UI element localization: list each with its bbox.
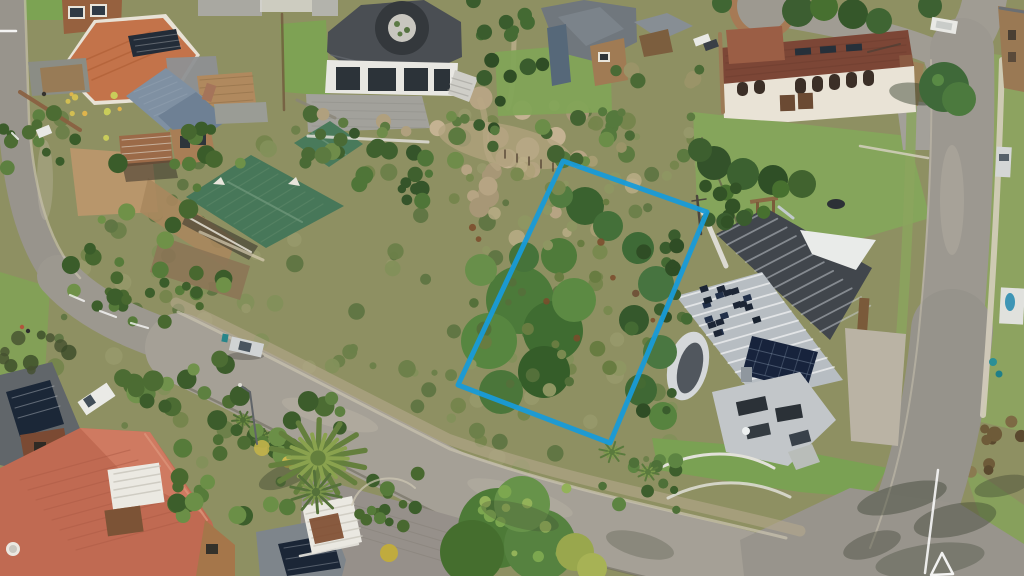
med-wing-window-1 xyxy=(737,82,748,96)
verge-bushes-east xyxy=(658,479,668,489)
verge-bushes-east xyxy=(629,458,640,469)
scrub-texture xyxy=(55,125,69,139)
garden-topleft xyxy=(182,157,196,171)
scrub-texture xyxy=(348,344,358,354)
mansion-slope-garden xyxy=(446,111,457,122)
shadow-bushes-above-solar-house xyxy=(27,366,36,375)
big-tree-highlights xyxy=(511,550,517,556)
mansion-courtyard-core xyxy=(388,14,416,42)
flowers-topleft xyxy=(70,111,75,116)
pool xyxy=(1005,293,1015,311)
shrubs-north-road xyxy=(145,288,155,298)
shrubs-south-road-1 xyxy=(143,370,164,391)
bushes-right-of-green-house xyxy=(366,142,382,158)
mansion-slope-garden xyxy=(315,147,332,164)
trees-mansion-east xyxy=(477,24,492,39)
bushes-right-of-green-house xyxy=(425,170,433,178)
plot-scrub xyxy=(604,184,614,194)
flowers-topleft xyxy=(104,109,110,115)
mansion-slope-garden xyxy=(315,129,326,140)
round-garden-bed xyxy=(409,501,422,514)
mansion-slope-garden xyxy=(338,118,348,128)
garden-topleft xyxy=(56,157,65,166)
scrub-texture xyxy=(431,370,437,376)
garden-topleft xyxy=(193,183,202,192)
med-solar-tube-3 xyxy=(846,43,862,51)
tan-building-window-1 xyxy=(1008,30,1016,40)
shrubs-south-road-2 xyxy=(207,410,227,430)
plot-bush-8 xyxy=(465,254,497,286)
road-bend-tree-highlight xyxy=(932,74,944,86)
sand-patches xyxy=(461,164,472,175)
scrub-ne xyxy=(616,142,627,153)
med-arch-5 xyxy=(863,70,874,86)
med-arch-2 xyxy=(812,76,823,92)
east-tree-fill xyxy=(636,403,651,418)
courtyard-plant-3 xyxy=(398,32,403,37)
plot-scrub xyxy=(590,341,606,357)
med-wing-window-2 xyxy=(754,80,765,94)
round-garden-bed xyxy=(411,467,425,481)
house-g-window xyxy=(600,54,608,60)
shrubs-north-road xyxy=(190,286,202,298)
plot-sand xyxy=(488,207,501,220)
shrubs-south-road-1 xyxy=(188,363,200,375)
garden-bed-left xyxy=(172,481,183,492)
plot-scrub xyxy=(551,340,559,348)
garden-topleft xyxy=(84,243,96,255)
garden-topleft xyxy=(159,278,169,288)
trees-mansion-east xyxy=(517,8,532,23)
scrub-texture xyxy=(547,445,564,462)
blue-house-flat-roof xyxy=(214,102,268,124)
scrub-texture xyxy=(196,456,208,468)
bushes-below-g-lawn xyxy=(490,125,500,135)
plot-dry-bushes xyxy=(597,238,604,245)
med-solar-tube-2 xyxy=(820,45,836,53)
med-arch-4 xyxy=(846,72,857,88)
plot-scrub xyxy=(557,350,566,359)
east-tree-6 xyxy=(649,402,677,430)
mansion-slope-garden xyxy=(377,127,388,138)
teal-object-sidewalk-1 xyxy=(989,358,997,366)
big-tree-highlights xyxy=(498,485,511,498)
verge-bushes-east xyxy=(668,453,683,468)
plot-dry-bushes xyxy=(610,275,616,281)
round-garden-bed xyxy=(380,481,395,496)
scrub-texture xyxy=(385,261,401,277)
flowers-topleft xyxy=(103,135,109,141)
bushes-below-g-lawn xyxy=(570,110,586,126)
tan-building-window-2 xyxy=(1008,52,1016,62)
bushes-below-g-lawn xyxy=(599,132,615,148)
shrubs-south-road-1 xyxy=(128,380,145,397)
plot-dry-bushes xyxy=(573,335,580,342)
playground-post-2 xyxy=(772,200,775,213)
shrubs-south-road-2 xyxy=(213,434,224,445)
flowers-topleft xyxy=(110,92,117,99)
left-corner-bushes xyxy=(42,148,51,157)
flowers-topleft xyxy=(82,111,87,116)
east-tree-fill xyxy=(667,388,677,398)
med-arch-1 xyxy=(795,78,806,94)
bushes-right-of-green-house xyxy=(414,193,430,209)
shadow-bushes-above-solar-house xyxy=(11,331,25,345)
scrub-texture xyxy=(105,347,123,365)
plot-dry-bushes xyxy=(632,290,639,297)
scrub-texture xyxy=(447,324,461,338)
shrubs-north-road xyxy=(152,261,169,278)
scrub-texture xyxy=(447,413,457,423)
bushes-right-of-green-house xyxy=(417,150,434,167)
mansion-window-2 xyxy=(368,68,396,91)
dark-tree-4 xyxy=(788,170,816,198)
sand-patches xyxy=(479,177,498,196)
garden-topleft xyxy=(216,277,232,293)
shrubs-north-road xyxy=(189,266,204,281)
shrubs-south-road-2 xyxy=(237,436,251,450)
scrub-texture xyxy=(241,304,251,314)
red-house-window-1 xyxy=(206,544,218,554)
shadow-bushes-above-solar-house xyxy=(37,331,46,340)
scrub-texture xyxy=(670,160,679,169)
modern-geyser xyxy=(742,427,750,435)
mansion-slope-garden xyxy=(301,147,316,162)
scrub-texture xyxy=(643,203,652,212)
garden-bed-left xyxy=(279,499,295,515)
bushes-right-of-green-house xyxy=(402,194,413,205)
pergola-1-soil xyxy=(104,506,143,537)
plot-scrub xyxy=(602,360,617,375)
orange-house-pergola xyxy=(40,64,85,93)
satellite-dish-2-inner xyxy=(9,545,17,553)
verge-bushes-east xyxy=(598,482,607,491)
garden-topleft xyxy=(165,217,181,233)
scrub-texture xyxy=(348,303,365,320)
yucca-2-crown xyxy=(645,469,651,475)
shrubs-south-road-1 xyxy=(211,351,228,368)
scrub-texture xyxy=(449,193,460,204)
bushes-below-g-lawn xyxy=(535,119,551,135)
mansion-slope-garden xyxy=(334,133,348,147)
road-wear-3 xyxy=(940,145,964,255)
scrub-texture xyxy=(683,127,694,138)
scrub-texture xyxy=(643,456,649,462)
garden-topleft xyxy=(156,231,174,249)
plot-scrub xyxy=(565,377,574,386)
scrub-ne xyxy=(625,130,635,140)
big-tree-highlights xyxy=(561,483,571,493)
left-corner-bushes xyxy=(46,105,62,121)
plot-scrub xyxy=(577,240,584,247)
plot-scrub xyxy=(567,221,578,232)
bushes-right-of-green-house xyxy=(349,128,360,139)
scrub-texture xyxy=(291,125,300,134)
dry-hedge xyxy=(981,435,991,445)
bushes-below-g-lawn xyxy=(487,141,498,152)
aerial-photo xyxy=(0,0,1024,576)
east-tree-fill xyxy=(636,244,651,259)
top-canopy-4 xyxy=(866,8,892,34)
plot-tree-2 xyxy=(593,211,623,241)
scrub-texture xyxy=(469,423,485,439)
mansion-slope-garden xyxy=(460,114,470,124)
plot-scrub xyxy=(510,168,524,182)
streetlight-lamp xyxy=(238,383,242,387)
garden-topleft xyxy=(111,271,124,284)
yellow-bush-3 xyxy=(380,544,398,562)
east-tree-fill xyxy=(625,321,639,335)
scrub-texture xyxy=(370,362,377,369)
plot-dry-bushes xyxy=(476,236,482,242)
plot-scrub xyxy=(603,306,612,315)
plot-scrub xyxy=(522,323,534,335)
garden-bed-left xyxy=(228,506,246,524)
shrubs-north-road xyxy=(106,288,123,305)
aloe-1-crown xyxy=(240,417,246,423)
scrub-texture xyxy=(61,314,68,321)
person-1 xyxy=(20,325,24,329)
plot-scrub xyxy=(506,380,515,389)
orange-house-window-2 xyxy=(92,6,105,15)
shrubs-north-road xyxy=(92,300,103,311)
med-lawn-hedge xyxy=(730,182,742,194)
med-garage-2 xyxy=(798,93,814,110)
garden-bed-left xyxy=(231,424,243,436)
round-garden-bed xyxy=(374,512,386,524)
left-corner-bushes xyxy=(33,136,45,148)
scrub-texture xyxy=(159,290,172,303)
courtyard-plant-1 xyxy=(394,21,400,27)
trees-mansion-east xyxy=(476,70,492,86)
scrub-ne xyxy=(684,76,697,89)
top-canopy-3 xyxy=(838,0,868,29)
left-corner-bushes xyxy=(22,125,36,139)
round-garden-bed xyxy=(399,500,408,509)
scrub-ne xyxy=(687,113,696,122)
garden-topleft xyxy=(205,150,222,167)
plot-scrub xyxy=(554,272,564,282)
garden-topleft xyxy=(69,133,81,145)
top-edge-gray-block xyxy=(312,0,338,16)
round-garden-bed xyxy=(367,506,376,515)
plot-scrub xyxy=(469,298,479,308)
bushes-right-of-green-house xyxy=(351,176,367,192)
east-tree-fill xyxy=(668,259,677,268)
garden-topleft xyxy=(108,154,127,173)
person-3 xyxy=(42,92,46,96)
top-edge-paving xyxy=(198,0,262,16)
plot-scrub xyxy=(466,174,474,182)
garden-topleft xyxy=(235,158,246,169)
yucca-1-crown xyxy=(609,449,615,455)
road-bend-tree-2 xyxy=(942,82,976,116)
scrub-ne xyxy=(617,108,625,116)
shrubs-south-road-2 xyxy=(325,392,338,405)
east-tree-fill xyxy=(662,406,670,414)
verge-bushes-east xyxy=(641,485,654,498)
person-2 xyxy=(26,329,30,333)
scrub-texture xyxy=(325,359,340,374)
mansion-window-3 xyxy=(404,68,428,91)
garden-bed-left xyxy=(173,439,192,458)
shrubs-north-road xyxy=(114,257,124,267)
parked-car-right xyxy=(995,147,1012,178)
plot-scrub xyxy=(603,199,610,206)
scrub-texture xyxy=(421,382,436,397)
east-tree-fill xyxy=(669,239,684,254)
garden-bed-left xyxy=(185,492,204,511)
verge-bushes-east xyxy=(670,486,678,494)
flowers-topleft xyxy=(66,99,71,104)
shadow-bushes-above-solar-house xyxy=(46,333,55,342)
mansion-slope-garden xyxy=(448,127,466,145)
garden-topleft xyxy=(62,256,80,274)
round-garden-bed xyxy=(360,514,372,526)
dry-hedge xyxy=(984,465,994,475)
left-corner-bushes xyxy=(0,160,15,175)
top-edge-white-structure xyxy=(260,0,314,12)
scrub-texture xyxy=(177,179,189,191)
med-lawn-hedge xyxy=(721,216,734,229)
garden-bed-left xyxy=(200,475,215,490)
orange-house-window-1 xyxy=(70,8,83,17)
bushes-below-g-lawn xyxy=(598,107,607,116)
garden-topleft xyxy=(118,203,135,220)
aerial-photo-container xyxy=(0,0,1024,576)
shadow-bushes-above-solar-house xyxy=(61,345,76,360)
trees-mansion-east xyxy=(473,119,485,131)
flowers-topleft xyxy=(117,107,121,111)
scrub-texture xyxy=(387,243,403,259)
plot-scrub xyxy=(526,368,540,382)
shrubs-south-road-1 xyxy=(140,394,155,409)
scrub-texture xyxy=(411,399,425,413)
sand-patches xyxy=(469,197,489,217)
shrubs-south-road-2 xyxy=(230,386,250,406)
scrub-ne xyxy=(630,73,645,88)
scrub-texture xyxy=(286,255,303,272)
med-lawn-hedge xyxy=(757,206,770,219)
mansion-window-1 xyxy=(336,67,360,90)
scrub-texture xyxy=(629,205,643,219)
scrub-texture xyxy=(267,295,284,312)
trees-mansion-east xyxy=(520,58,537,75)
shrubs-north-road xyxy=(182,282,191,291)
east-tree-fill xyxy=(681,313,693,325)
med-arch-3 xyxy=(829,74,840,90)
trees-mansion-east xyxy=(504,70,517,83)
plot-scrub xyxy=(543,383,557,397)
courtyard-plant-2 xyxy=(404,27,410,33)
trees-mansion-east xyxy=(536,58,549,71)
scrub-texture xyxy=(502,199,509,206)
garden-bed-left xyxy=(263,497,279,513)
dark-tree-5 xyxy=(688,138,712,162)
scrub-texture xyxy=(398,360,416,378)
scrub-texture xyxy=(644,167,659,182)
shrubs-south-road-2 xyxy=(298,391,319,412)
plot-dry-bushes xyxy=(543,298,550,305)
bushes-right-of-green-house xyxy=(410,183,421,194)
flowers-topleft xyxy=(72,94,78,100)
plot-dry-bushes xyxy=(469,224,476,231)
scrub-texture xyxy=(583,415,597,429)
mansion-slope-garden xyxy=(447,152,464,169)
shrubs-south-road-2 xyxy=(335,406,346,417)
scrub-texture xyxy=(121,422,128,429)
scrub-texture xyxy=(610,332,624,346)
mansion-slope-garden xyxy=(317,108,330,121)
plot-scrub xyxy=(505,299,512,306)
scrub-ne xyxy=(694,65,704,75)
med-lawn-hedge xyxy=(713,187,727,201)
trees-mansion-east xyxy=(495,96,506,107)
med-house-flat-deck xyxy=(726,26,785,64)
plot-scrub xyxy=(482,246,490,254)
scrub-ne xyxy=(610,65,621,76)
shrubs-north-road xyxy=(158,315,172,329)
modern-gravel-driveway xyxy=(845,328,906,446)
scrub-texture xyxy=(413,208,428,223)
plot-bush-6 xyxy=(552,278,596,322)
trees-mansion-east xyxy=(509,25,519,35)
verge-bushes-east xyxy=(612,497,626,511)
shrubs-south-road-2 xyxy=(213,446,228,461)
scrub-texture xyxy=(420,274,431,285)
modern-chimney xyxy=(741,367,752,382)
shrubs-north-road xyxy=(121,294,132,305)
palm-tree-lower-crown xyxy=(312,488,320,496)
dry-hedge xyxy=(1005,416,1017,428)
shrubs-south-road-1 xyxy=(198,386,212,400)
big-tree-highlights xyxy=(533,551,544,562)
med-lawn-hedge xyxy=(772,180,789,197)
mansion-lawn xyxy=(280,20,330,96)
verge-bushes-east xyxy=(672,506,680,514)
scrub-texture xyxy=(380,164,397,181)
trees-mansion-east xyxy=(484,53,499,68)
mansion-slope-garden xyxy=(401,126,412,137)
med-garage-1 xyxy=(780,95,796,112)
plot-scrub xyxy=(592,244,607,259)
palm-tree-main-crown xyxy=(310,450,325,465)
scrub-texture xyxy=(589,116,604,131)
bushes-right-of-green-house xyxy=(380,142,398,160)
bushes-right-of-green-house xyxy=(400,177,411,188)
trampoline xyxy=(827,199,845,209)
round-garden-bed xyxy=(397,520,410,533)
scrub-texture xyxy=(455,407,462,414)
med-lawn-hedge xyxy=(736,210,752,226)
med-lawn-hedge xyxy=(699,180,712,193)
garden-bed-left xyxy=(168,494,187,513)
med-solar-tube-1 xyxy=(795,47,811,55)
shrubs-north-road xyxy=(195,302,203,310)
garden-topleft xyxy=(98,216,106,224)
scrub-texture xyxy=(492,434,508,450)
mansion-window-4 xyxy=(434,69,450,91)
scrub-texture xyxy=(105,219,118,232)
scrub-texture xyxy=(260,140,277,157)
garden-topleft xyxy=(181,124,197,140)
plot-scrub xyxy=(543,240,553,250)
plot-scrub xyxy=(518,288,526,296)
garden-topleft xyxy=(169,159,180,170)
plot-scrub xyxy=(662,171,672,181)
garden-topleft xyxy=(179,199,199,219)
teal-object-sidewalk-2 xyxy=(996,371,1003,378)
